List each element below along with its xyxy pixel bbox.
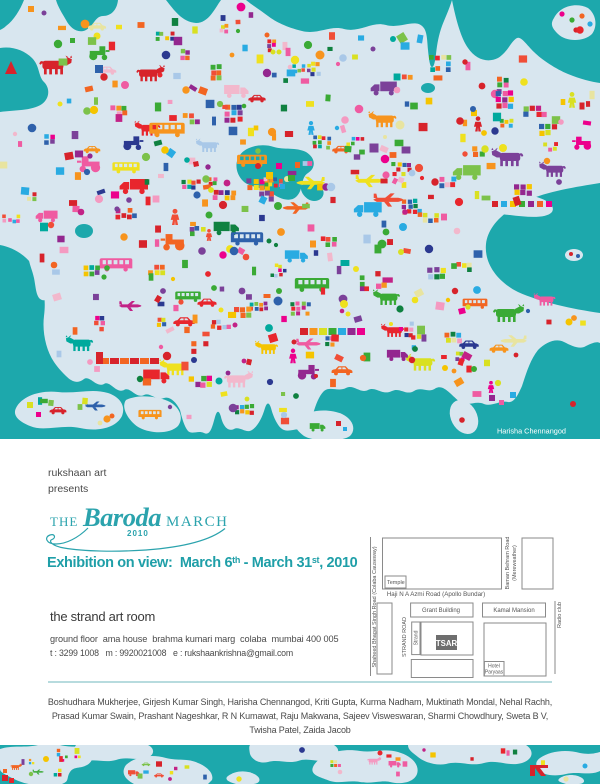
svg-text:Baman Behram Road: Baman Behram Road bbox=[505, 537, 511, 590]
svg-text:Temple: Temple bbox=[387, 580, 405, 586]
svg-text:Kamal Mansion: Kamal Mansion bbox=[493, 608, 534, 614]
svg-text:(Mereweather): (Mereweather) bbox=[512, 545, 518, 581]
svg-text:Shaheed Bhagat Singh Road (Col: Shaheed Bhagat Singh Road (Colaba Causew… bbox=[372, 546, 378, 667]
svg-text:TSAR: TSAR bbox=[436, 639, 458, 648]
svg-text:Baroda: Baroda bbox=[82, 502, 161, 532]
svg-text:Strand: Strand bbox=[414, 630, 420, 645]
svg-text:Harisha Chennangod: Harisha Chennangod bbox=[497, 427, 566, 436]
svg-text:THE: THE bbox=[50, 514, 78, 529]
svg-text:Paryaas: Paryaas bbox=[485, 670, 504, 676]
svg-text:Grant Building: Grant Building bbox=[422, 608, 460, 614]
svg-text:STRAND ROAD: STRAND ROAD bbox=[402, 617, 408, 657]
svg-text:2010: 2010 bbox=[127, 529, 149, 538]
svg-text:MARCH: MARCH bbox=[166, 514, 229, 530]
svg-text:Radio club: Radio club bbox=[557, 602, 563, 628]
svg-text:Haji N A Azmi Road (Apollo Bun: Haji N A Azmi Road (Apollo Bundar) bbox=[387, 591, 485, 598]
